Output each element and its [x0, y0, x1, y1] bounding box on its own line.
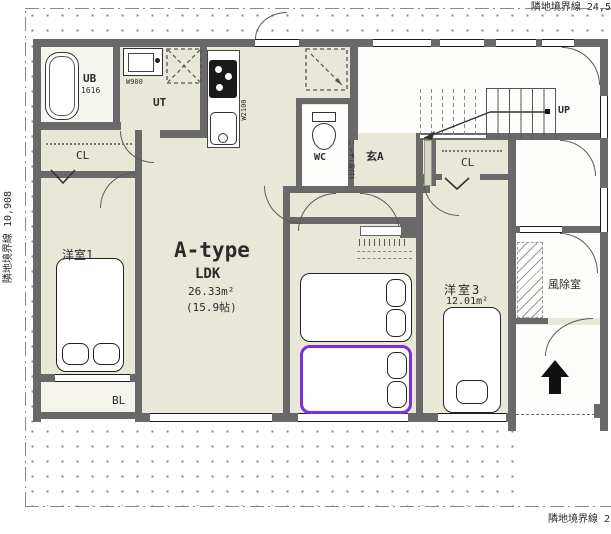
folding-door-icon	[444, 177, 470, 191]
pillow	[387, 352, 407, 379]
window-bedroom1-balcony	[55, 374, 130, 382]
site-ground-bottom	[25, 424, 520, 506]
vanity-bowl	[128, 53, 154, 72]
vanity-faucet	[155, 58, 160, 63]
sink-drain	[218, 133, 228, 143]
wall-bath-bottom	[33, 122, 121, 130]
window-top-4	[542, 39, 574, 47]
label-wc: WC	[314, 152, 326, 163]
label-entrance: 玄A	[366, 148, 384, 164]
toilet-bowl	[312, 123, 336, 150]
kitchen-sink-icon	[210, 112, 237, 145]
wall-entrance-bottom	[290, 186, 430, 193]
label-bath-size: 1616	[81, 86, 100, 95]
stairs-direction-arrow	[418, 92, 558, 140]
wall-bedroom3-wing	[508, 133, 516, 431]
closet2-shelf	[360, 226, 402, 236]
closet1-shelf-line	[46, 143, 132, 145]
label-bath: UB	[83, 72, 96, 85]
boundary-label-left: 隣地境界線 10,908	[0, 151, 13, 323]
wall-wc-left	[296, 98, 302, 193]
label-utility: UT	[153, 96, 166, 109]
pillow	[93, 343, 120, 365]
site-boundary-line-bottom	[25, 506, 611, 507]
closet2-stub	[400, 223, 416, 238]
label-unit-type: A-type	[174, 238, 250, 262]
washing-machine-icon	[166, 48, 202, 84]
pillow	[387, 381, 407, 408]
pillow	[386, 279, 406, 307]
window-right-1	[600, 96, 608, 138]
wall-closet3-bottom-2	[480, 174, 508, 180]
entry-arrow-icon	[541, 360, 569, 396]
boundary-label-top: 隣地境界線 24,5	[470, 0, 611, 13]
label-niche: ニッチ(扉付)	[349, 129, 358, 191]
porch-post	[594, 404, 608, 418]
window-ldk-south	[150, 413, 272, 422]
wall-wc-top	[296, 98, 354, 104]
label-balcony: BL	[112, 394, 125, 407]
label-ldk: LDK	[195, 266, 220, 282]
window-top-2	[440, 39, 484, 47]
refrigerator-space	[305, 48, 348, 91]
window-bedroom2-south	[298, 413, 408, 422]
boundary-label-bottom: 隣地境界線 2	[430, 510, 610, 525]
stove-icon	[209, 60, 237, 98]
closet2-dash-1	[357, 251, 412, 252]
wall-windbreak-bottom	[516, 318, 548, 324]
closet2-hanger-pipe	[359, 239, 405, 246]
burner	[216, 84, 223, 91]
window-bedroom3-south	[438, 413, 506, 422]
window-corridor	[520, 226, 562, 233]
label-ldk-tatami: (15.9帖)	[186, 299, 237, 315]
burner	[225, 73, 232, 80]
pillow	[456, 380, 488, 404]
outer-wall-left	[33, 39, 41, 422]
stairs-up-label: UP	[558, 105, 570, 116]
closet3-shelf-line	[442, 150, 502, 152]
windbreak-step-hatch	[517, 242, 543, 318]
vanity-icon	[123, 48, 163, 76]
arrow-stem	[549, 376, 561, 394]
toilet-icon	[310, 112, 338, 152]
bed-bedroom2-upper	[300, 273, 412, 342]
floor-plan: 隣地境界線 24,5 隣地境界線 10,908 隣地境界線 2	[0, 0, 611, 534]
label-bedroom1: 洋室1	[62, 246, 93, 263]
bed-bedroom1	[56, 258, 124, 372]
window-top-1	[373, 39, 431, 47]
label-closet1: CL	[76, 149, 89, 162]
burner	[215, 66, 222, 73]
bed-bedroom2-lower-selected[interactable]	[300, 345, 412, 414]
label-ldk-area: 26.33m²	[188, 285, 234, 298]
closet2-dash-2	[357, 258, 412, 259]
label-bedroom3-area: 12.01m²	[446, 296, 488, 307]
bed-bedroom3	[443, 307, 501, 413]
wall-bedroom2-bedroom3	[416, 133, 423, 421]
bathtub-inner	[49, 56, 75, 116]
label-closet3: CL	[461, 156, 474, 169]
bathtub-icon	[45, 52, 79, 120]
window-top-3	[496, 39, 536, 47]
wall-balcony-rail	[33, 412, 142, 419]
toilet-tank	[312, 112, 336, 122]
site-boundary-line-left	[25, 8, 26, 506]
service-door-opening	[255, 39, 299, 47]
folding-door-icon	[50, 169, 76, 185]
pillow	[386, 309, 406, 337]
pillow	[62, 343, 89, 365]
window-right-2	[600, 188, 608, 232]
label-vanity-width: W900	[126, 78, 143, 86]
entrance-step	[424, 140, 432, 186]
wall-ub-ut	[113, 39, 120, 130]
label-kitchen-width: W2100	[240, 90, 248, 130]
label-windbreak: 風除室	[548, 276, 581, 292]
arrow-head	[541, 360, 569, 377]
